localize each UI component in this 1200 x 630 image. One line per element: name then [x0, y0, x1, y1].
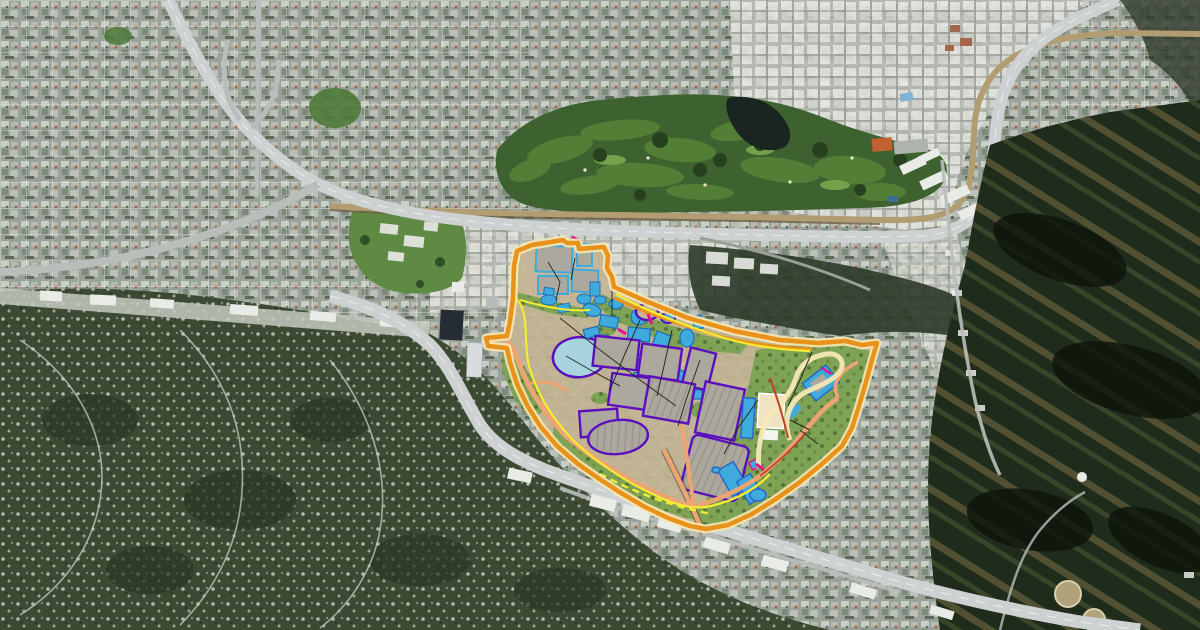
midrise-block	[486, 296, 498, 308]
satellite-map-image: Aerial satellite photograph of a valley …	[0, 0, 1200, 630]
cyan-tall-building	[741, 398, 756, 439]
white-dome-tank	[1077, 472, 1087, 482]
north-south-street	[257, 0, 258, 195]
red-roof-1	[950, 25, 960, 32]
red-roof-3	[945, 45, 954, 51]
white-highrise	[466, 343, 482, 378]
low-building	[452, 282, 464, 292]
small-park	[309, 88, 361, 128]
small-park-2	[104, 27, 132, 45]
clubhouse	[872, 137, 893, 152]
water-tank-1	[1055, 581, 1081, 607]
satellite-map: Aerial satellite photograph of a valley …	[0, 0, 1200, 630]
red-roof-2	[960, 38, 972, 46]
tennis-court	[888, 196, 898, 202]
dark-office-tower	[439, 309, 464, 340]
